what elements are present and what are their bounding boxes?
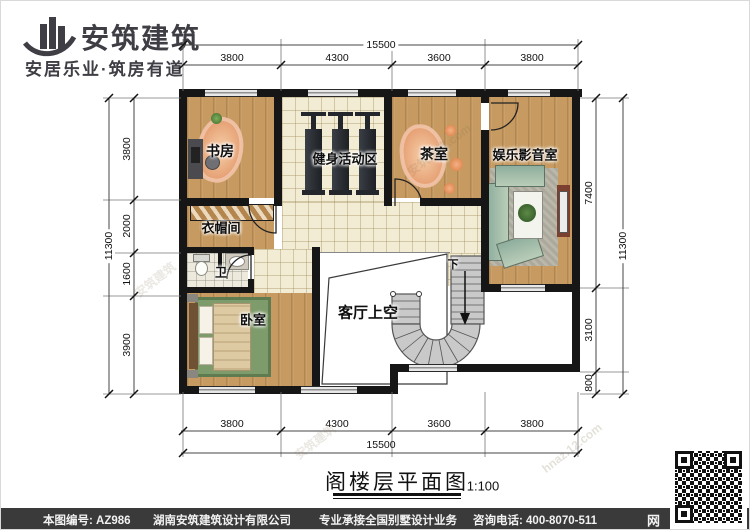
dim-label: 11300 <box>103 229 115 263</box>
footer-phone: 咨询电话: 400-8070-511 <box>473 512 597 528</box>
dim-label: 7400 <box>583 181 595 204</box>
dim-label: 3800 <box>220 52 243 64</box>
footer-company: 湖南安筑建筑设计有限公司 <box>153 512 291 528</box>
drawing-number: 本图编号: AZ986 <box>43 512 131 528</box>
dim-label: 3600 <box>427 418 450 430</box>
dim-label: 3900 <box>121 333 133 356</box>
dim-label: 3800 <box>220 418 243 430</box>
dim-label: 3800 <box>121 137 133 160</box>
title-underline-thick <box>333 493 461 496</box>
dim-label: 3800 <box>520 52 543 64</box>
plan-title: 阁楼层平面图 <box>325 466 469 496</box>
dim-label: 15500 <box>363 39 398 51</box>
dim-label: 4300 <box>325 52 348 64</box>
dim-label: 3100 <box>583 318 595 341</box>
dim-label: 3800 <box>520 418 543 430</box>
dim-label: 2000 <box>121 214 133 237</box>
title-underline-thin <box>333 498 461 499</box>
qr-code <box>670 445 747 529</box>
dim-label: 1600 <box>121 262 133 285</box>
footer-bar: 本图编号: AZ986 湖南安筑建筑设计有限公司 专业承接全国别墅设计业务 咨询… <box>1 508 750 530</box>
plan-scale: 1:100 <box>467 479 500 494</box>
dim-label: 800 <box>583 374 595 392</box>
dim-label: 3600 <box>427 52 450 64</box>
dim-label: 11300 <box>617 229 629 263</box>
footer-web-char: 网 <box>647 510 660 529</box>
footer-service: 专业承接全国别墅设计业务 <box>319 512 457 528</box>
floor-plan-page: 安筑建筑 安居乐业·筑房有道 <box>0 0 750 530</box>
dim-label: 15500 <box>366 439 395 451</box>
